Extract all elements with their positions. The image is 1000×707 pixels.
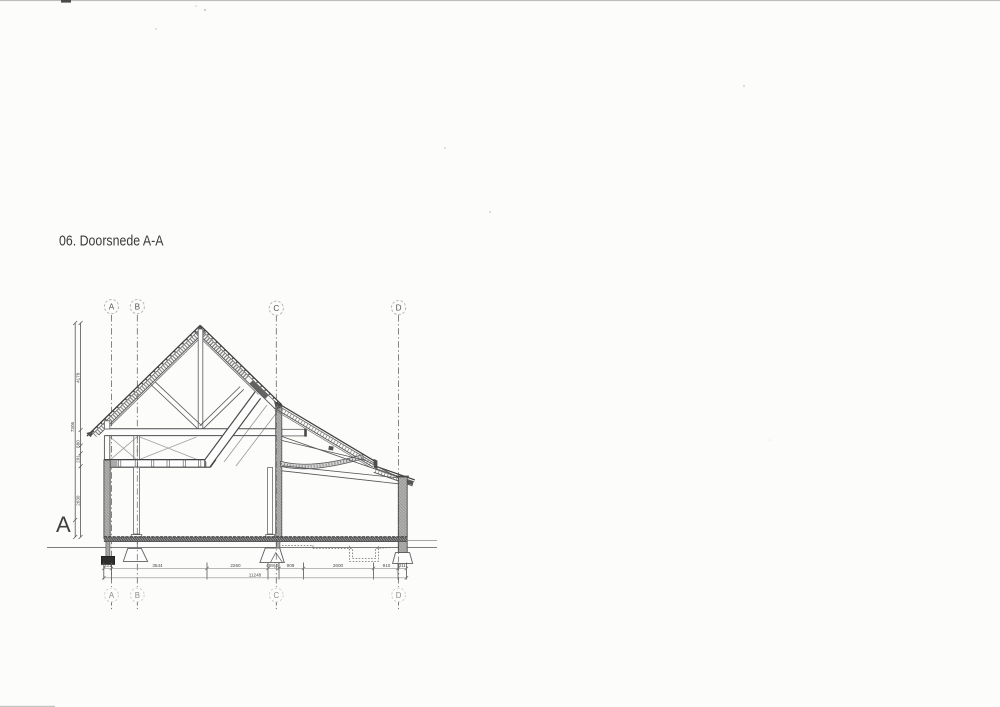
svg-text:11248: 11248 [249, 572, 262, 577]
svg-text:A: A [56, 512, 71, 537]
svg-text:311: 311 [399, 563, 407, 568]
svg-text:A: A [109, 591, 115, 600]
svg-text:C: C [273, 591, 279, 600]
svg-text:580: 580 [75, 440, 80, 448]
svg-text:409(4): 409(4) [266, 563, 280, 568]
svg-text:C: C [273, 304, 279, 313]
svg-text:4178: 4178 [75, 372, 80, 383]
svg-text:D: D [396, 304, 402, 313]
svg-text:7306: 7306 [70, 421, 75, 432]
svg-text:06. Doorsnede A-A: 06. Doorsnede A-A [59, 233, 164, 250]
svg-text:2630: 2630 [75, 495, 80, 506]
svg-text:D: D [396, 591, 402, 600]
svg-text:909: 909 [287, 563, 295, 568]
svg-text:291: 291 [75, 455, 80, 463]
svg-text:B: B [135, 303, 141, 312]
svg-text:910: 910 [383, 563, 391, 568]
svg-text:3544: 3544 [152, 563, 163, 568]
svg-text:231: 231 [104, 563, 112, 568]
svg-text:A: A [109, 303, 115, 312]
svg-text:B: B [135, 591, 140, 600]
svg-text:2260: 2260 [230, 563, 241, 568]
svg-text:2600: 2600 [333, 563, 344, 568]
